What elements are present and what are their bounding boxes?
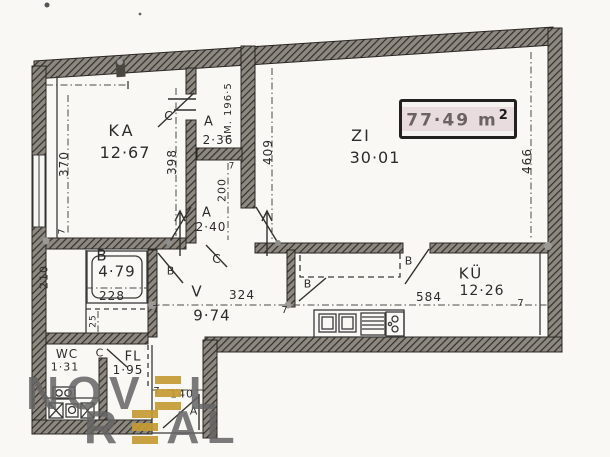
door-label-c2: C	[212, 253, 221, 265]
dim-228: 228	[99, 290, 125, 302]
dim-210: 210	[39, 265, 50, 289]
door-label-b2: B	[304, 279, 313, 290]
door-label-c1: C	[164, 110, 173, 122]
floorplan-scan: KA 12·67 ZI 30·01 A 2·36 A 2·40 B 4·79 V…	[0, 0, 610, 457]
watermark-text: R	[84, 400, 124, 454]
room-label-ku: KÜ	[459, 267, 483, 282]
dim-370: 370	[58, 151, 70, 177]
dim-466: 466	[521, 148, 533, 174]
dim-height-note: iM. 196·5	[224, 82, 234, 137]
door-label-b3: B	[405, 256, 414, 267]
total-area-value: 77·49 m2	[402, 107, 513, 132]
room-area-ku: 12·26	[459, 284, 504, 298]
room-area-a2: 2·40	[196, 221, 227, 233]
room-label-b: B	[96, 249, 107, 264]
room-label-a1: A	[204, 116, 214, 129]
room-area-v: 9·74	[193, 309, 230, 324]
door-label-c3: C	[96, 348, 105, 359]
room-label-fl: FL	[125, 351, 142, 364]
total-area-sup: 2	[499, 108, 510, 123]
dim-398: 398	[166, 149, 178, 175]
room-label-zi: ZI	[351, 128, 371, 144]
door-label-b1: B	[167, 266, 176, 277]
dim-584: 584	[416, 291, 442, 303]
watermark-line-2: R AL	[84, 400, 242, 454]
dim-tick-5: 7	[517, 299, 524, 309]
dim-tick-1: 7	[59, 228, 68, 235]
dim-tick-2: 7	[229, 163, 236, 172]
room-label-wc: WC	[56, 348, 78, 360]
room-label-v: V	[191, 285, 202, 300]
room-label-a2: A	[202, 207, 212, 220]
room-area-ka: 12·67	[100, 145, 151, 161]
dim-tick-3: 7	[152, 305, 159, 315]
total-area-badge: 77·49 m2	[399, 99, 517, 139]
room-area-zi: 30·01	[350, 150, 401, 166]
dim-200: 200	[217, 178, 228, 202]
dim-tick-4: 7	[281, 306, 288, 316]
dim-409: 409	[262, 139, 274, 165]
watermark-text: AL	[166, 400, 241, 454]
dim-324: 324	[229, 289, 255, 301]
dim-25: 25	[90, 314, 99, 327]
watermark-e-icon	[130, 410, 160, 444]
room-label-ka: KA	[108, 123, 135, 139]
room-area-b: 4·79	[98, 265, 135, 280]
